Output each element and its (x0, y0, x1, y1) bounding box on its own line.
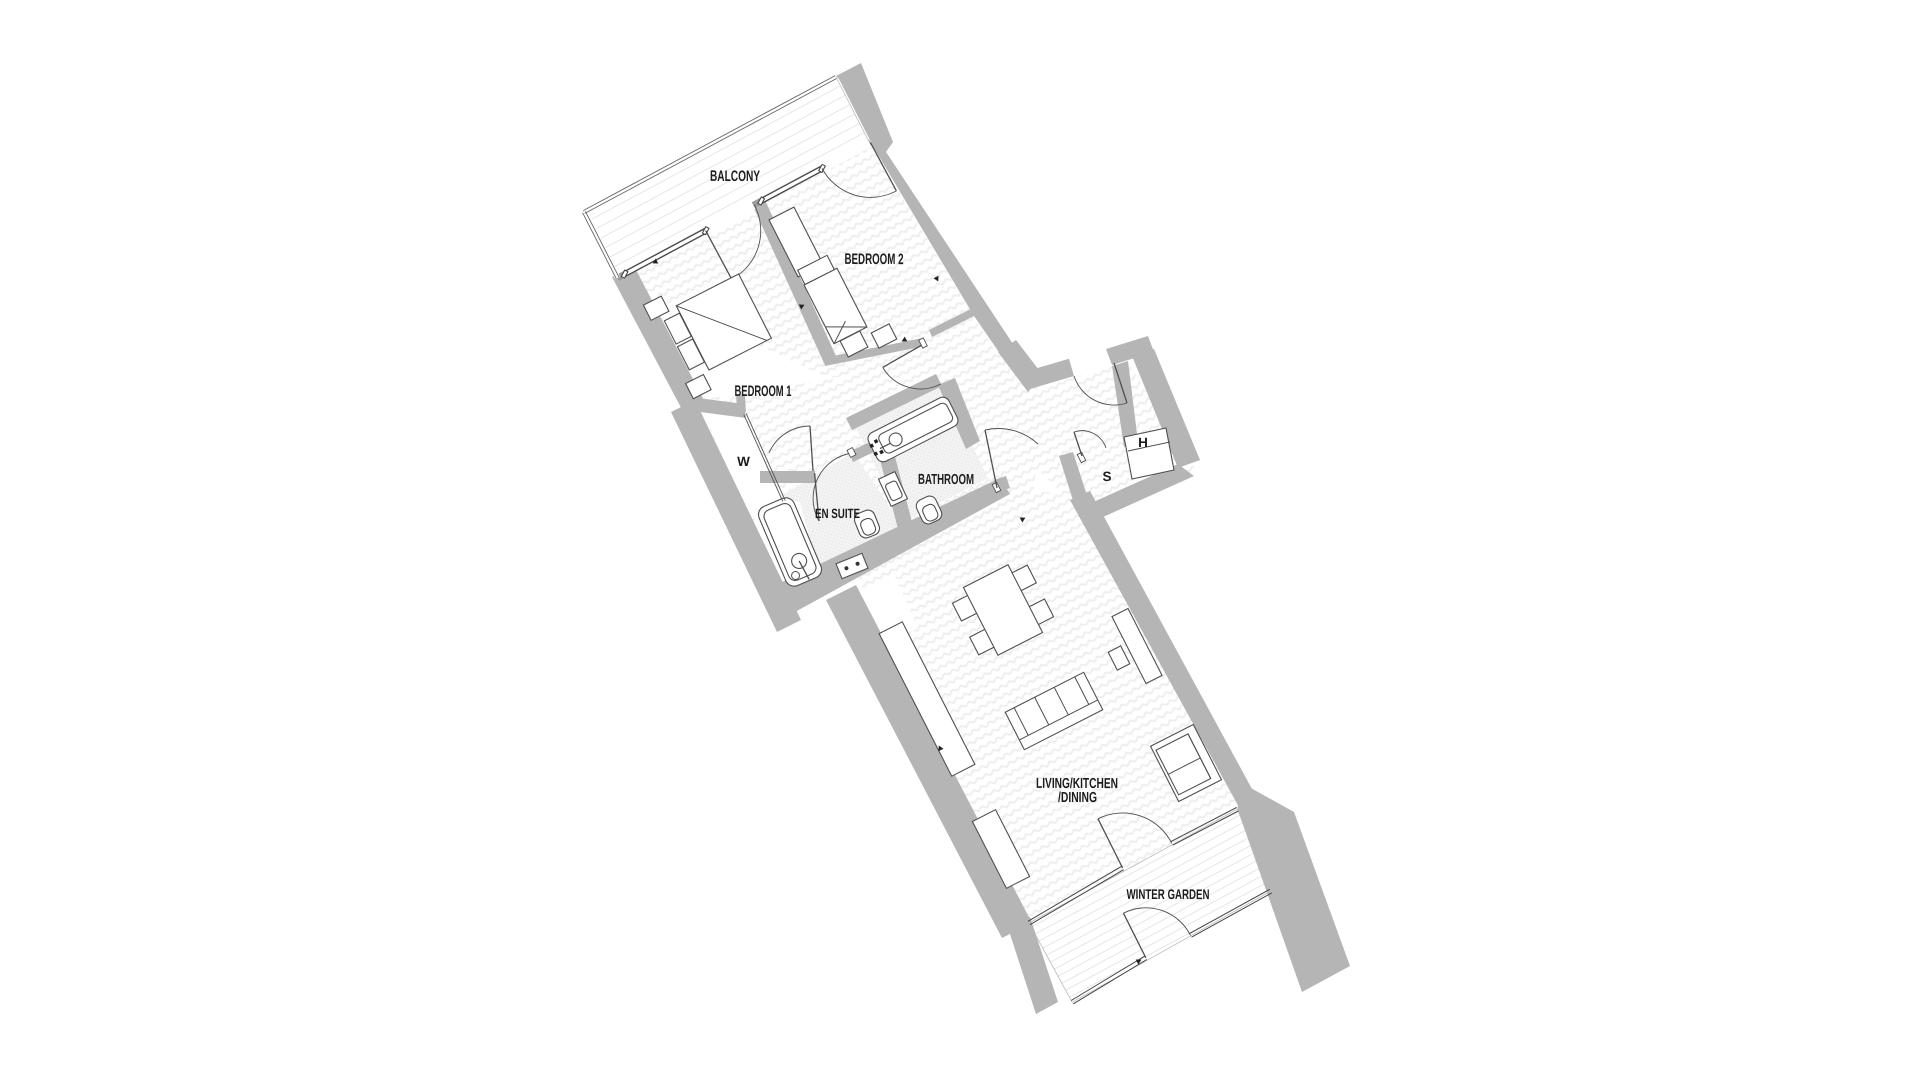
svg-text:S: S (1102, 469, 1111, 484)
svg-text:H: H (1138, 435, 1148, 450)
svg-text:WINTER GARDEN: WINTER GARDEN (1126, 886, 1209, 902)
svg-text:/DINING: /DINING (1058, 790, 1097, 806)
svg-text:BEDROOM 1: BEDROOM 1 (734, 383, 791, 400)
svg-text:BATHROOM: BATHROOM (918, 472, 974, 488)
svg-text:W: W (737, 454, 750, 469)
svg-text:EN SUITE: EN SUITE (815, 506, 860, 521)
svg-text:BEDROOM 2: BEDROOM 2 (844, 251, 903, 268)
svg-text:BALCONY: BALCONY (710, 168, 760, 185)
